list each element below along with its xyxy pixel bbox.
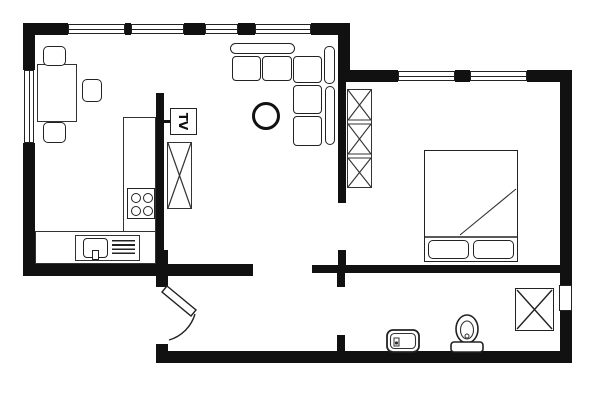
window-pane xyxy=(29,71,30,142)
bedroom-top-wall-right xyxy=(527,70,572,82)
left-wall-lower xyxy=(23,143,35,276)
kitchen-sink-unit xyxy=(75,235,140,261)
dish-drainer-lines xyxy=(112,240,135,257)
dining-chair-bottom xyxy=(43,122,66,143)
sofa-seat-3 xyxy=(293,85,322,114)
kitchen-living-divider xyxy=(156,93,164,264)
window-left xyxy=(24,70,34,143)
sofa-seat-1 xyxy=(232,56,261,81)
window-top-3 xyxy=(205,24,238,34)
window-pane xyxy=(132,29,183,30)
window-pane xyxy=(69,29,124,30)
stove-burner xyxy=(131,206,141,216)
door-swing-arc xyxy=(169,314,195,340)
dining-chair-right xyxy=(82,79,102,102)
coffee-table xyxy=(252,102,280,130)
window-pane xyxy=(206,29,237,30)
window-top-2 xyxy=(131,24,184,34)
dining-table xyxy=(37,64,77,122)
tv-wall-connector xyxy=(163,120,170,123)
bathroom-wall-niche xyxy=(559,285,572,311)
bedroom-top-wall-pier xyxy=(455,70,470,82)
sink-faucet-icon xyxy=(92,250,99,260)
bathroom-sink-icon xyxy=(386,329,420,353)
tall-cabinet-x-icon xyxy=(167,142,192,209)
living-bedroom-divider-upper xyxy=(338,82,346,203)
wardrobe-x-icon xyxy=(347,89,372,188)
bed-pillow-left xyxy=(428,240,469,259)
window-pane xyxy=(471,76,526,77)
floor-plan: TV xyxy=(0,0,600,400)
top-wall-pier xyxy=(238,23,255,35)
tv-unit: TV xyxy=(170,108,197,135)
living-bedroom-divider-lower xyxy=(338,250,346,266)
stove-burner xyxy=(143,206,153,216)
left-wall-upper xyxy=(23,23,35,70)
sofa-corner-seat xyxy=(293,56,322,83)
window-pane xyxy=(256,29,310,30)
sofa-seat-2 xyxy=(262,56,292,81)
living-ne-corner-wall xyxy=(338,23,350,82)
bedroom-top-wall-left xyxy=(345,70,398,82)
window-top-4 xyxy=(255,24,311,34)
bedroom-bottom-wall xyxy=(312,265,566,273)
window-bedroom-1 xyxy=(398,71,455,81)
stove xyxy=(127,188,155,219)
entrance-door xyxy=(154,282,226,354)
sofa-back-right-2 xyxy=(325,86,335,145)
stove-burner xyxy=(131,193,141,203)
hall-bath-divider-lower xyxy=(337,335,345,352)
hall-bath-divider-upper xyxy=(337,272,345,287)
sofa-back-top xyxy=(230,43,295,54)
kitchen-bottom-wall xyxy=(23,264,253,276)
window-bedroom-2 xyxy=(470,71,527,81)
toilet-icon xyxy=(448,313,486,355)
shower-x-icon xyxy=(515,288,554,331)
window-top-1 xyxy=(68,24,125,34)
window-pane xyxy=(399,76,454,77)
dining-chair-top xyxy=(43,46,66,66)
stove-burner xyxy=(143,193,153,203)
sofa-seat-4 xyxy=(293,116,322,146)
tv-label: TV xyxy=(171,109,196,134)
top-wall-pier xyxy=(184,23,205,35)
sofa-back-right-1 xyxy=(324,46,335,84)
right-wall xyxy=(560,71,572,363)
bed-pillow-right xyxy=(473,240,514,259)
